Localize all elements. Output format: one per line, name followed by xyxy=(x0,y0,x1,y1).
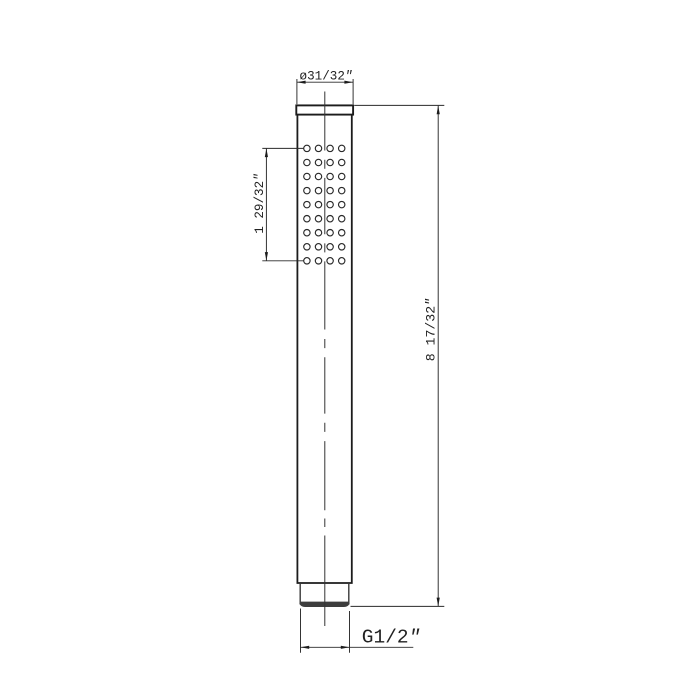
svg-text:8 17/32″: 8 17/32″ xyxy=(424,298,439,361)
svg-text:G1/2″: G1/2″ xyxy=(362,627,421,649)
svg-text:1 29/32″: 1 29/32″ xyxy=(253,173,267,233)
